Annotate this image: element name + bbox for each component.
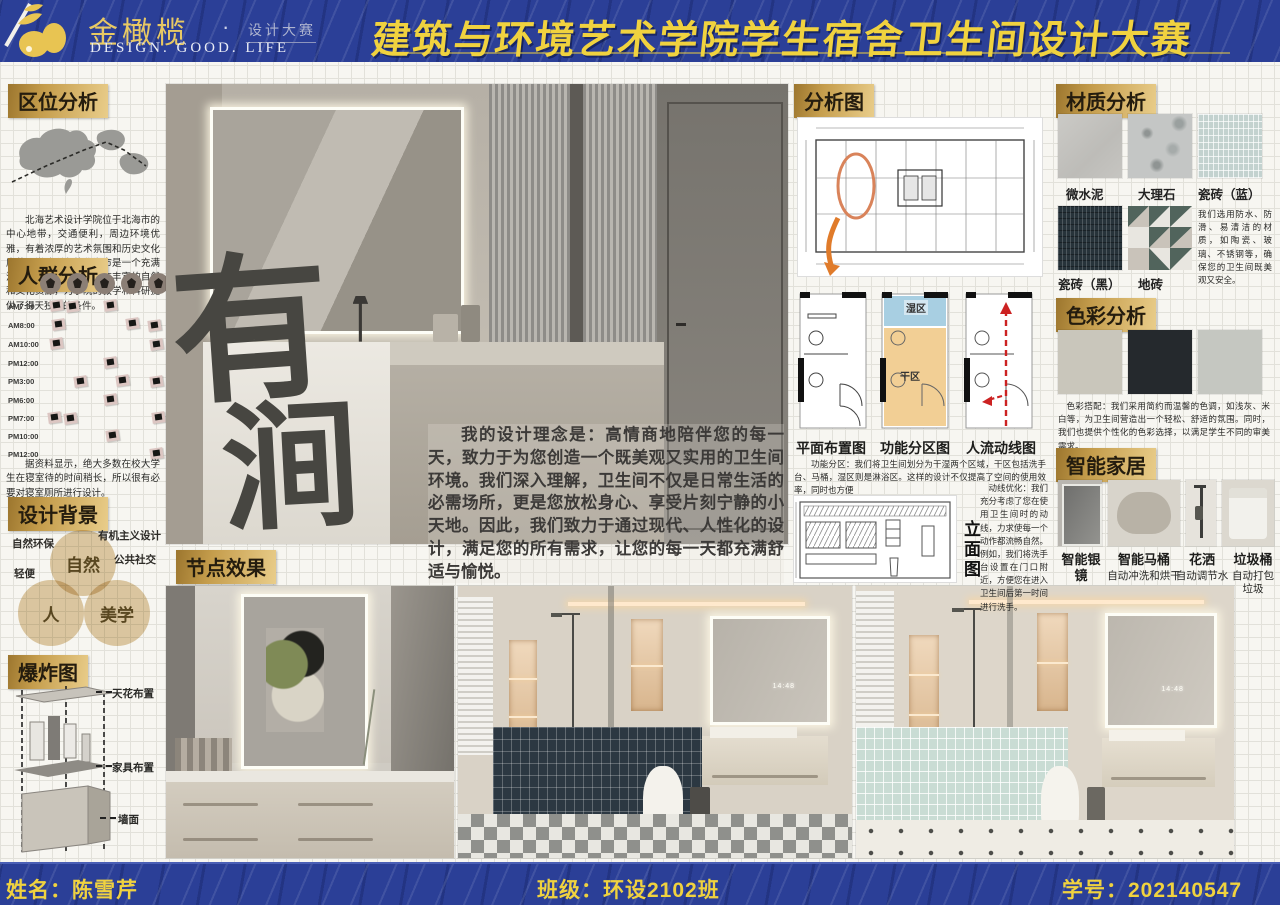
time-row-label: PM12:00 bbox=[8, 359, 38, 368]
brand-separator: · bbox=[222, 14, 229, 40]
crowd-note: 据资料显示，绝大多数在校大学生在寝室待的时间稍长，所以很有必要对寝室厕所进行设计… bbox=[6, 458, 160, 501]
smart-item-desc: 自动冲洗和烘干 bbox=[1106, 570, 1182, 583]
leader-line bbox=[96, 765, 112, 767]
shower-head bbox=[952, 608, 963, 612]
dry-zone-label: 干区 bbox=[900, 368, 920, 383]
soap-bottle bbox=[433, 314, 458, 342]
smart-item-name: 智能银镜 bbox=[1058, 552, 1104, 585]
time-row-label: AM7:00 bbox=[8, 302, 35, 311]
exploded-label-ceiling: 天花布置 bbox=[112, 686, 154, 701]
smart-item-name: 垃圾桶 bbox=[1228, 552, 1278, 568]
activity-icon bbox=[149, 375, 163, 388]
time-row-label: PM6:00 bbox=[8, 396, 34, 405]
activity-icon bbox=[149, 338, 163, 351]
building-floor-plan bbox=[798, 118, 1042, 276]
sink bbox=[710, 727, 797, 738]
smart-shower-photo bbox=[1186, 480, 1216, 546]
section-title-nodes: 节点效果 bbox=[176, 550, 276, 584]
section-title-palette: 色彩分析 bbox=[1056, 298, 1156, 332]
shower-head bbox=[551, 613, 563, 617]
vanity-mirror bbox=[241, 594, 368, 769]
materials-note: 我们选用防水、防滑、易清洁的材质，如陶瓷、玻璃、不锈钢等，确保您的卫生间既美观又… bbox=[1198, 208, 1272, 287]
smart-item-desc: 自动调节水 bbox=[1174, 570, 1230, 583]
niche-shelves bbox=[1037, 613, 1067, 711]
abstract-artwork bbox=[266, 628, 324, 733]
student-name: 姓名：陈雪芹 bbox=[6, 874, 138, 904]
time-row-label: PM3:00 bbox=[8, 377, 34, 386]
material-label: 瓷砖（黑） bbox=[1058, 274, 1121, 293]
mirror-clock: 14:48 bbox=[773, 683, 796, 690]
counter-items bbox=[175, 738, 233, 771]
venn-circle-aesthetics: 美学 bbox=[84, 580, 150, 646]
circulation-plan-drawing bbox=[962, 288, 1038, 434]
vanity-cabinet bbox=[702, 736, 828, 785]
olive-logo-icon bbox=[4, 2, 74, 60]
node-photo-shower-dark: 14:48 bbox=[458, 586, 852, 858]
activity-icon bbox=[49, 299, 63, 312]
smart-toilet-photo bbox=[1108, 480, 1180, 546]
palette-swatch-2 bbox=[1128, 330, 1192, 394]
plan-label-3: 人流动线图 bbox=[966, 438, 1036, 458]
background-tag: 公共社交 bbox=[114, 552, 156, 567]
running-icon bbox=[40, 273, 61, 294]
header-bar: 金橄榄 · 设计大赛 DESIGN. GOOD. LIFE 建筑与环境艺术学院学… bbox=[0, 0, 1280, 62]
poster-board: 金橄榄 · 设计大赛 DESIGN. GOOD. LIFE 建筑与环境艺术学院学… bbox=[0, 0, 1280, 905]
layout-plan-drawing bbox=[796, 288, 872, 434]
activity-icon bbox=[65, 300, 79, 313]
circulation-text: 动线优化：我们充分考虑了您在使用卫生间时的动线，力求使每一个动作都流畅自然。例如… bbox=[980, 482, 1048, 614]
triangle-floor bbox=[458, 814, 852, 858]
material-label: 微水泥 bbox=[1066, 184, 1104, 203]
section-title-background: 设计背景 bbox=[8, 497, 108, 531]
activity-icon bbox=[63, 412, 77, 425]
activity-icon bbox=[147, 319, 161, 332]
china-map bbox=[6, 116, 160, 212]
material-microcement bbox=[1058, 114, 1122, 178]
mosaic-wainscot-mint bbox=[856, 727, 1068, 819]
leader-line bbox=[100, 817, 116, 819]
exploded-label-furniture: 家具布置 bbox=[112, 760, 154, 775]
material-label: 大理石 bbox=[1138, 184, 1176, 203]
material-label: 瓷砖（蓝） bbox=[1198, 184, 1261, 203]
brand-tagline: DESIGN. GOOD. LIFE bbox=[90, 40, 289, 57]
time-row-label: AM10:00 bbox=[8, 340, 39, 349]
smart-mirror-photo bbox=[1058, 480, 1102, 546]
section-title-location: 区位分析 bbox=[8, 84, 108, 118]
time-row-label: PM7:00 bbox=[8, 414, 34, 423]
background-tag: 自然环保 bbox=[12, 536, 54, 551]
window-blinds bbox=[458, 597, 493, 755]
node-photo-shower-mint: 14:48 bbox=[856, 586, 1234, 858]
palette-swatch-1 bbox=[1058, 330, 1122, 394]
activity-icon bbox=[47, 411, 61, 424]
activity-icon bbox=[115, 374, 129, 387]
section-title-smart: 智能家居 bbox=[1056, 448, 1156, 482]
activity-icon bbox=[51, 318, 65, 331]
material-tile-blue bbox=[1198, 114, 1262, 178]
led-mirror: 14:48 bbox=[710, 616, 830, 725]
vanity-cabinet bbox=[1102, 738, 1215, 787]
sleep-icon bbox=[121, 273, 142, 294]
activity-icon bbox=[125, 317, 139, 330]
exploded-view-diagram bbox=[8, 682, 118, 857]
crowd-timeline: AM7:00 AM8:00 AM10:00 PM12:00 PM3:00 PM6… bbox=[8, 300, 163, 458]
student-id: 学号：202140547 bbox=[1062, 874, 1242, 904]
material-marble bbox=[1128, 114, 1192, 178]
fluted-glass-panel bbox=[583, 84, 658, 369]
activity-icon bbox=[73, 375, 87, 388]
section-title-materials: 材质分析 bbox=[1056, 84, 1156, 118]
activity-icon bbox=[151, 411, 165, 424]
calligraphy-char-2: 涧 bbox=[218, 394, 363, 539]
node-photo-vanity bbox=[166, 586, 454, 858]
smart-item-name: 花洒 bbox=[1182, 552, 1222, 568]
smart-item-name: 智能马桶 bbox=[1106, 552, 1182, 568]
activity-icon bbox=[103, 356, 117, 369]
crowd-icon-row bbox=[40, 273, 169, 294]
smart-item-desc: 自动打包垃圾 bbox=[1228, 570, 1278, 596]
activity-icon bbox=[105, 429, 119, 442]
plan-label-2: 功能分区图 bbox=[880, 438, 950, 458]
leader-line bbox=[96, 691, 112, 693]
venn-circle-people: 人 bbox=[18, 580, 84, 646]
fluted-glass-panel bbox=[489, 84, 570, 369]
design-philosophy-text: 我的设计理念是：高情商地陪伴您的每一天，致力于为您创造一个既美观又实用的卫生间环… bbox=[428, 424, 784, 583]
background-tag: 轻便 bbox=[14, 566, 35, 581]
activity-icon bbox=[103, 299, 117, 312]
wet-zone-label: 湿区 bbox=[904, 300, 928, 315]
palette-swatch-3 bbox=[1198, 330, 1262, 394]
material-tile-black bbox=[1058, 206, 1122, 270]
student-class: 班级：环设2102班 bbox=[537, 874, 720, 904]
plan-label-1: 平面布置图 bbox=[796, 438, 866, 458]
exploded-label-wall: 墙面 bbox=[118, 812, 139, 827]
activity-icon bbox=[103, 393, 117, 406]
footer-bar: 姓名：陈雪芹 班级：环设2102班 学号：202140547 bbox=[0, 862, 1280, 905]
time-row-label: AM8:00 bbox=[8, 321, 35, 330]
mirror-clock: 14:48 bbox=[1161, 686, 1184, 693]
material-floor-tile bbox=[1128, 206, 1192, 270]
person-icon bbox=[94, 273, 115, 294]
washing-icon bbox=[67, 273, 88, 294]
soap-bottle bbox=[461, 305, 480, 342]
activity-icon bbox=[49, 337, 63, 350]
section-title-analysis: 分析图 bbox=[794, 84, 874, 118]
door-handle bbox=[676, 323, 686, 326]
led-mirror: 14:48 bbox=[1105, 613, 1217, 728]
elevation-drawing bbox=[794, 496, 956, 582]
poster-title: 建筑与环境艺术学院学生宿舍卫生间设计大赛 bbox=[369, 9, 1195, 65]
sink bbox=[1109, 730, 1185, 741]
star-floor bbox=[856, 820, 1234, 858]
smart-trash-photo bbox=[1222, 480, 1274, 546]
niche-shelves bbox=[631, 619, 663, 711]
title-underline bbox=[380, 52, 1230, 54]
palette-note: 色彩搭配：我们采用简约而温馨的色调，如浅灰、米白等，为卫生间营造出一个轻松、舒适… bbox=[1058, 400, 1270, 453]
material-label: 地砖 bbox=[1138, 274, 1163, 293]
time-row-label: PM10:00 bbox=[8, 432, 38, 441]
